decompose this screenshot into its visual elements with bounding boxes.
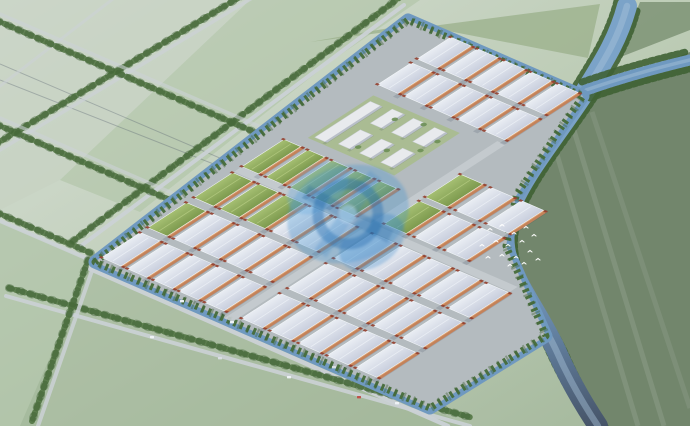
aerial-rendering-viewport bbox=[0, 0, 690, 426]
car bbox=[332, 366, 336, 368]
car bbox=[357, 396, 361, 398]
car bbox=[395, 402, 399, 404]
car bbox=[287, 376, 291, 378]
car bbox=[150, 336, 154, 338]
industrial-park-aerial-rendering bbox=[0, 0, 690, 426]
car bbox=[230, 321, 234, 323]
car bbox=[180, 300, 184, 302]
watermark-core bbox=[339, 205, 357, 223]
car bbox=[218, 357, 222, 359]
